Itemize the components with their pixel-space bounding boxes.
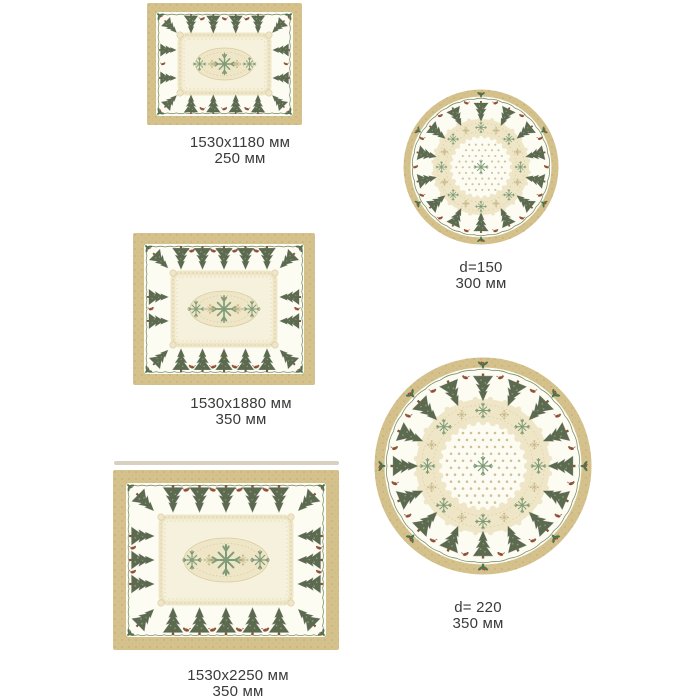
tablecloth-rect-medium-image (133, 233, 315, 385)
product-height-text: 250 мм (140, 151, 340, 167)
product-size-text: 1530x1880 мм (141, 396, 341, 412)
product-size-text: 1530x1180 мм (140, 135, 340, 151)
product-size-text: d= 220 (378, 600, 578, 616)
product-height-text: 350 мм (141, 412, 341, 428)
tablecloth-round-large-image (374, 357, 592, 575)
product-label-round-small: d=150 300 мм (381, 260, 581, 292)
tablecloth-round-small-image (403, 89, 559, 245)
product-height-text: 350 мм (378, 616, 578, 632)
product-height-text: 300 мм (381, 276, 581, 292)
product-size-text: 1530x2250 мм (138, 668, 338, 684)
tablecloth-rect-large-image (113, 470, 339, 650)
tablecloth-rect-small-image (147, 3, 302, 125)
product-label-rect-medium: 1530x1880 мм 350 мм (141, 396, 341, 428)
product-collage: 1530x1180 мм 250 мм d=150 300 мм 1530x18… (0, 0, 700, 700)
product-label-round-large: d= 220 350 мм (378, 600, 578, 632)
product-size-text: d=150 (381, 260, 581, 276)
product-label-rect-small: 1530x1180 мм 250 мм (140, 135, 340, 167)
cloth-top-edge-strip (114, 461, 339, 465)
product-label-rect-large: 1530x2250 мм 350 мм (138, 668, 338, 700)
product-height-text: 350 мм (138, 684, 338, 700)
